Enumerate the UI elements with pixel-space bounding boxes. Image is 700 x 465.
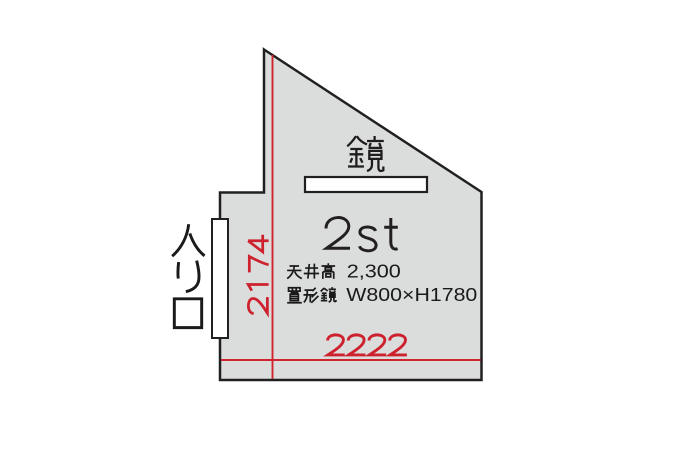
svg-text:W800×H1780: W800×H1780 [346, 285, 477, 305]
svg-text:2,300: 2,300 [347, 262, 401, 282]
